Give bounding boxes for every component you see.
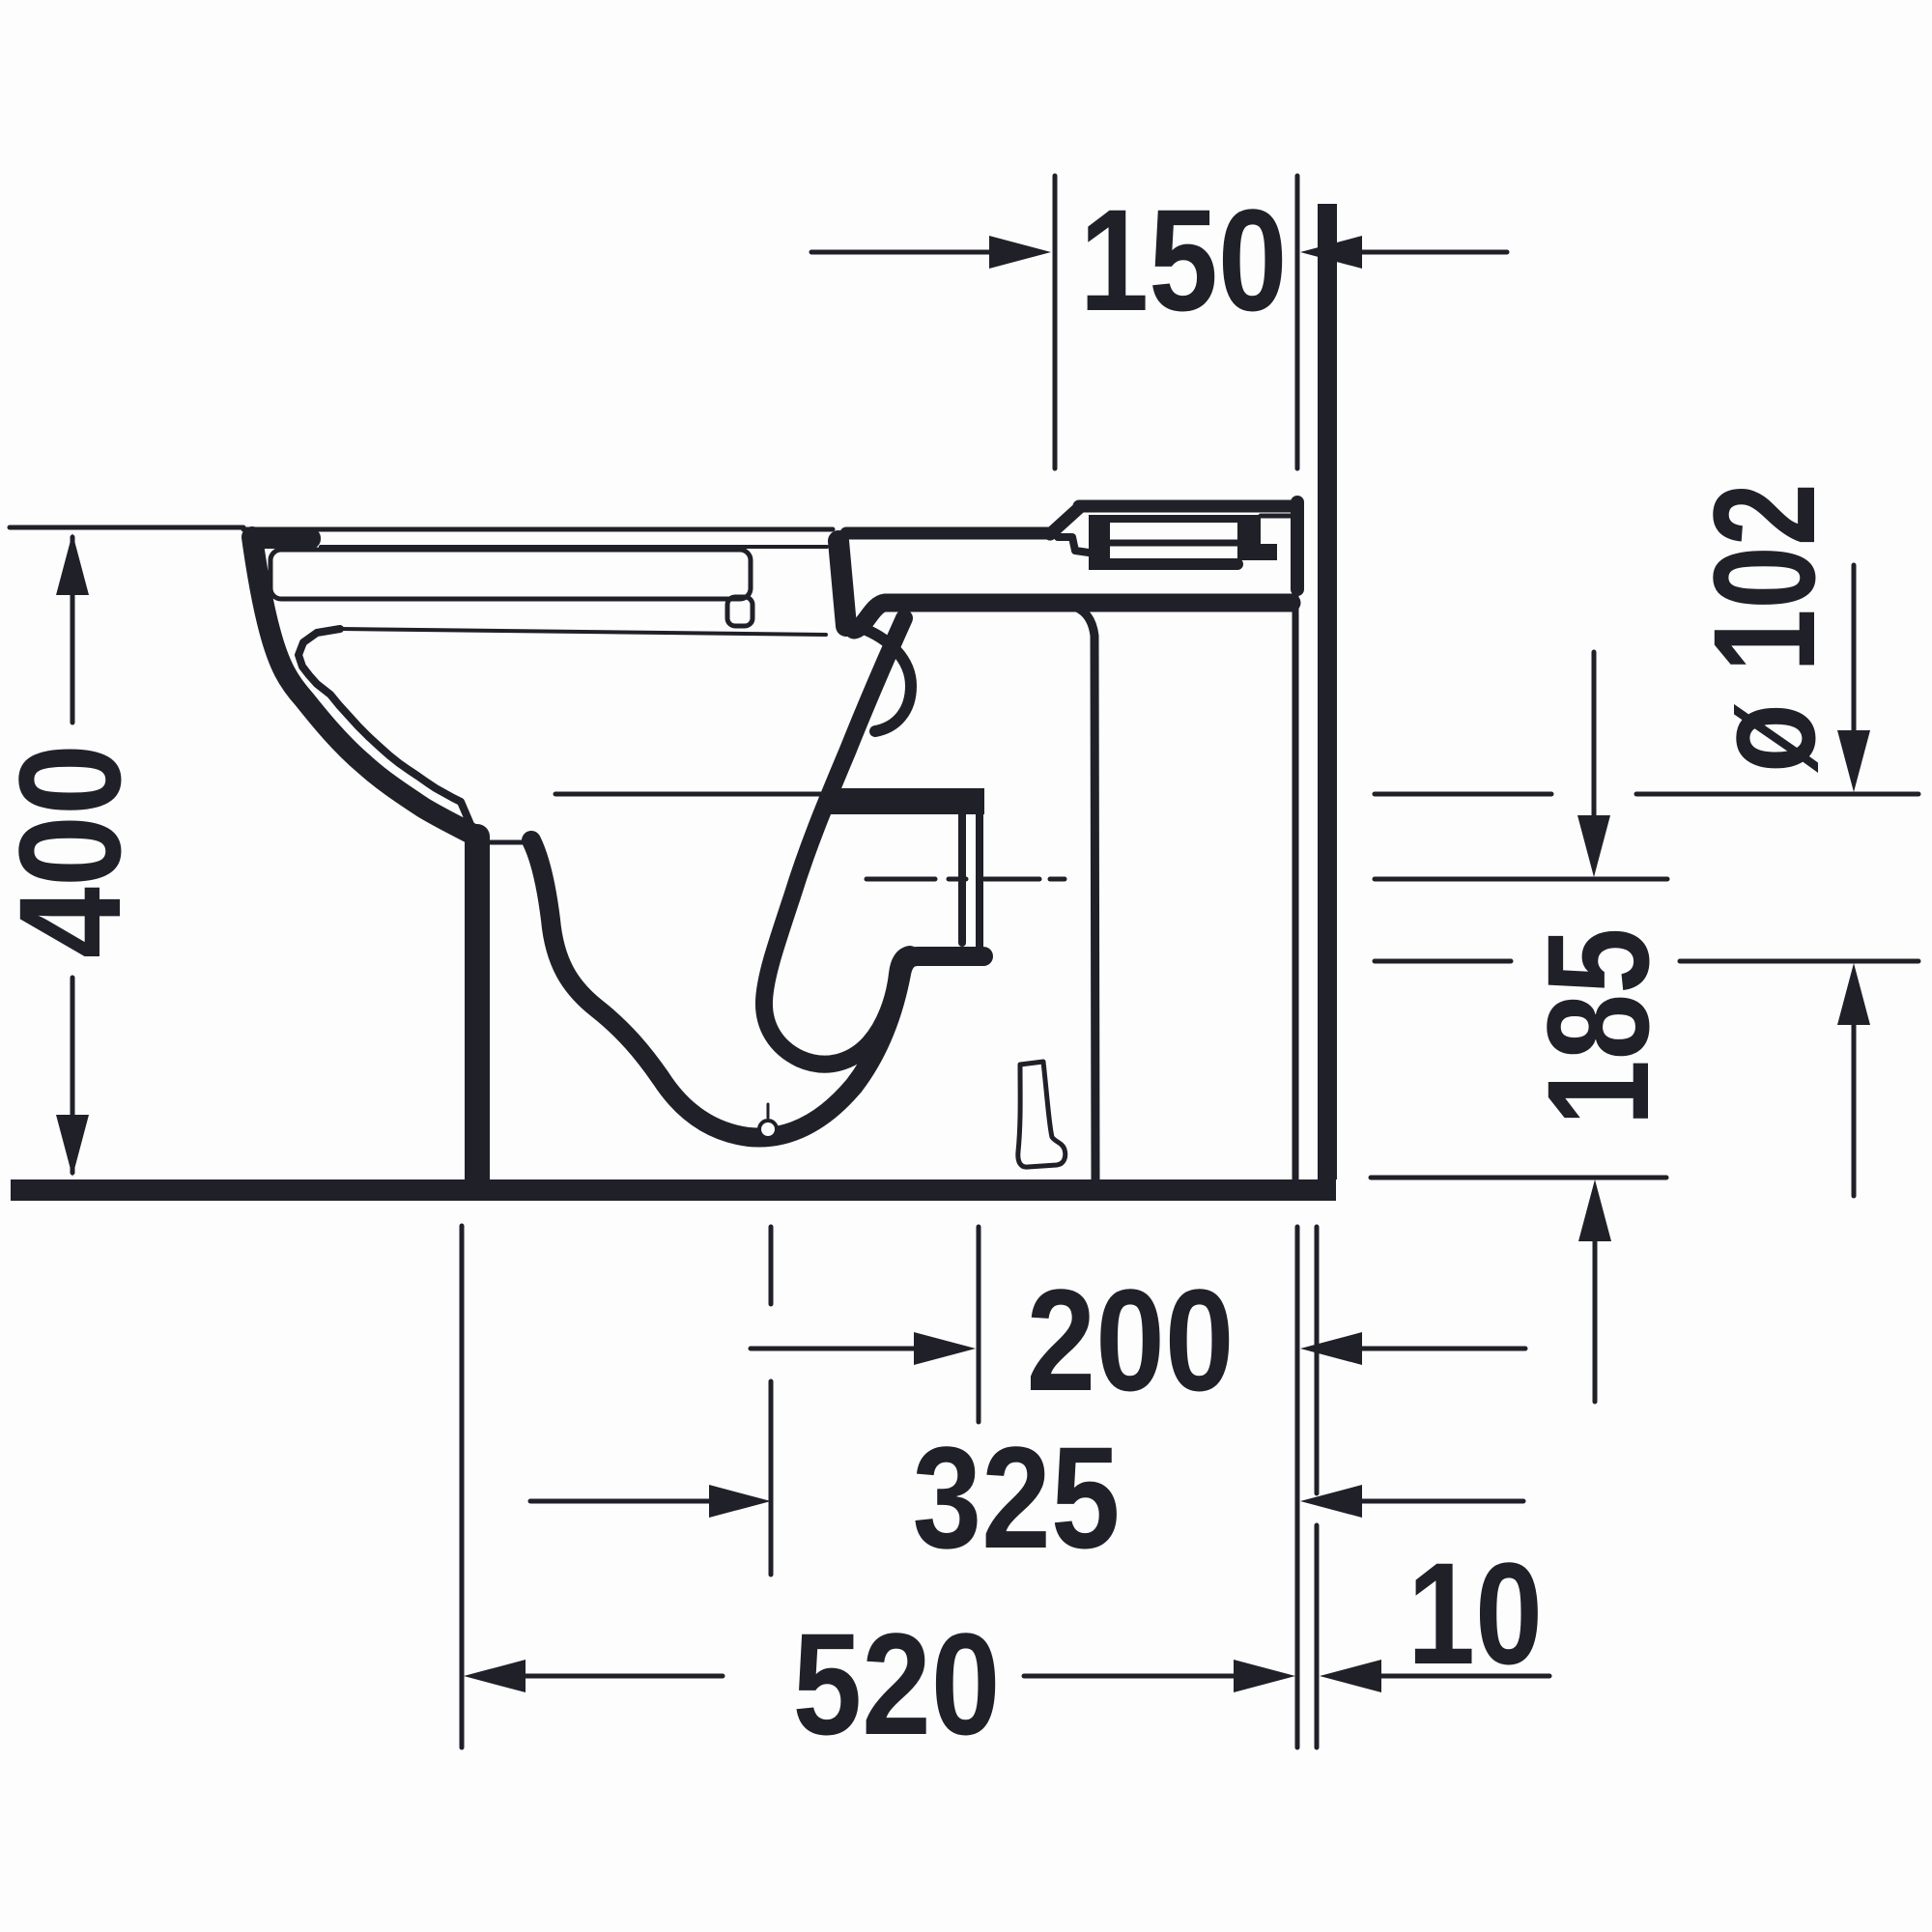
svg-text:10: 10 — [1407, 1532, 1543, 1694]
svg-text:325: 325 — [913, 1416, 1121, 1578]
svg-text:185: 185 — [1517, 928, 1679, 1126]
svg-text:400: 400 — [0, 744, 151, 958]
svg-text:520: 520 — [793, 1603, 1001, 1765]
svg-text:200: 200 — [1027, 1259, 1235, 1421]
svg-text:ø 102: ø 102 — [1683, 483, 1845, 773]
svg-text:150: 150 — [1080, 179, 1288, 341]
